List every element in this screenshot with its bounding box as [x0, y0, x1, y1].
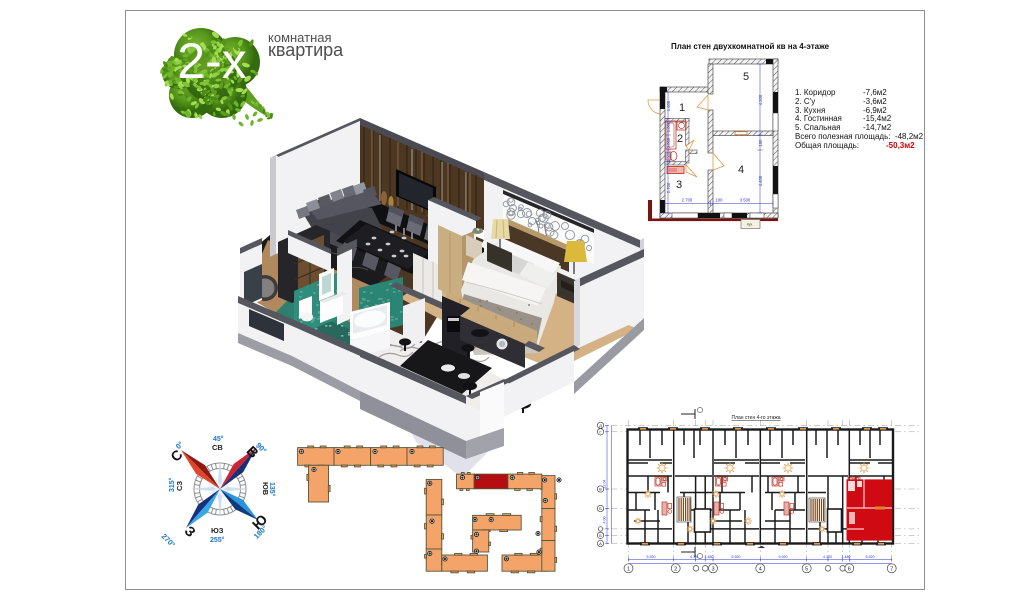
svg-text:1.480: 1.480 [705, 555, 714, 559]
svg-text:ЮЗ: ЮЗ [211, 526, 224, 535]
svg-text:2: 2 [674, 566, 677, 572]
svg-text:Б: Б [599, 506, 602, 511]
svg-text:100: 100 [716, 198, 724, 203]
svg-text:Б: Б [599, 533, 602, 538]
svg-text:С: С [167, 446, 185, 464]
svg-text:2-х: 2-х [177, 33, 246, 89]
svg-text:3: 3 [711, 566, 714, 572]
svg-text:270°: 270° [160, 532, 177, 549]
svg-text:4.200: 4.200 [758, 94, 763, 105]
svg-text:5.920: 5.920 [647, 555, 656, 559]
svg-text:3 500: 3 500 [740, 198, 751, 203]
svg-text:5: 5 [743, 71, 749, 83]
svg-text:5: 5 [805, 566, 808, 572]
svg-text:ЮВ: ЮВ [261, 482, 270, 496]
svg-text:4.00: 4.00 [603, 517, 607, 524]
svg-text:1: 1 [627, 566, 630, 572]
svg-text:План стен 4-го этажа: План стен 4-го этажа [731, 415, 780, 421]
svg-text:Д: Д [599, 423, 602, 428]
svg-text:4.100: 4.100 [823, 555, 832, 559]
svg-text:Кух.: Кух. [747, 223, 753, 227]
svg-text:5.920: 5.920 [779, 555, 788, 559]
svg-text:45°: 45° [213, 435, 224, 443]
svg-text:1.000: 1.000 [666, 121, 671, 132]
svg-text:З: З [182, 523, 200, 541]
svg-text:1.600: 1.600 [666, 100, 671, 111]
svg-text:3: 3 [676, 179, 682, 191]
svg-text:255°: 255° [210, 536, 225, 544]
svg-text:1.480: 1.480 [842, 555, 851, 559]
svg-text:12.04: 12.04 [603, 480, 607, 489]
svg-text:4: 4 [738, 164, 744, 176]
svg-text:100: 100 [758, 139, 763, 147]
svg-text:7: 7 [890, 566, 893, 572]
svg-text:6: 6 [848, 566, 851, 572]
svg-text:5.920: 5.920 [732, 555, 741, 559]
svg-text:СЗ: СЗ [175, 481, 184, 491]
svg-text:СВ: СВ [212, 443, 223, 452]
svg-text:4: 4 [759, 566, 762, 572]
svg-text:2.000: 2.000 [666, 137, 671, 148]
svg-text:2: 2 [677, 133, 683, 145]
svg-text:2 700: 2 700 [682, 198, 693, 203]
svg-text:1: 1 [679, 102, 685, 114]
svg-text:4.400: 4.400 [758, 175, 763, 186]
svg-text:2.700: 2.700 [666, 182, 671, 193]
svg-text:1.000: 1.000 [666, 151, 671, 162]
svg-text:5.920: 5.920 [866, 555, 875, 559]
svg-text:А: А [599, 541, 602, 546]
